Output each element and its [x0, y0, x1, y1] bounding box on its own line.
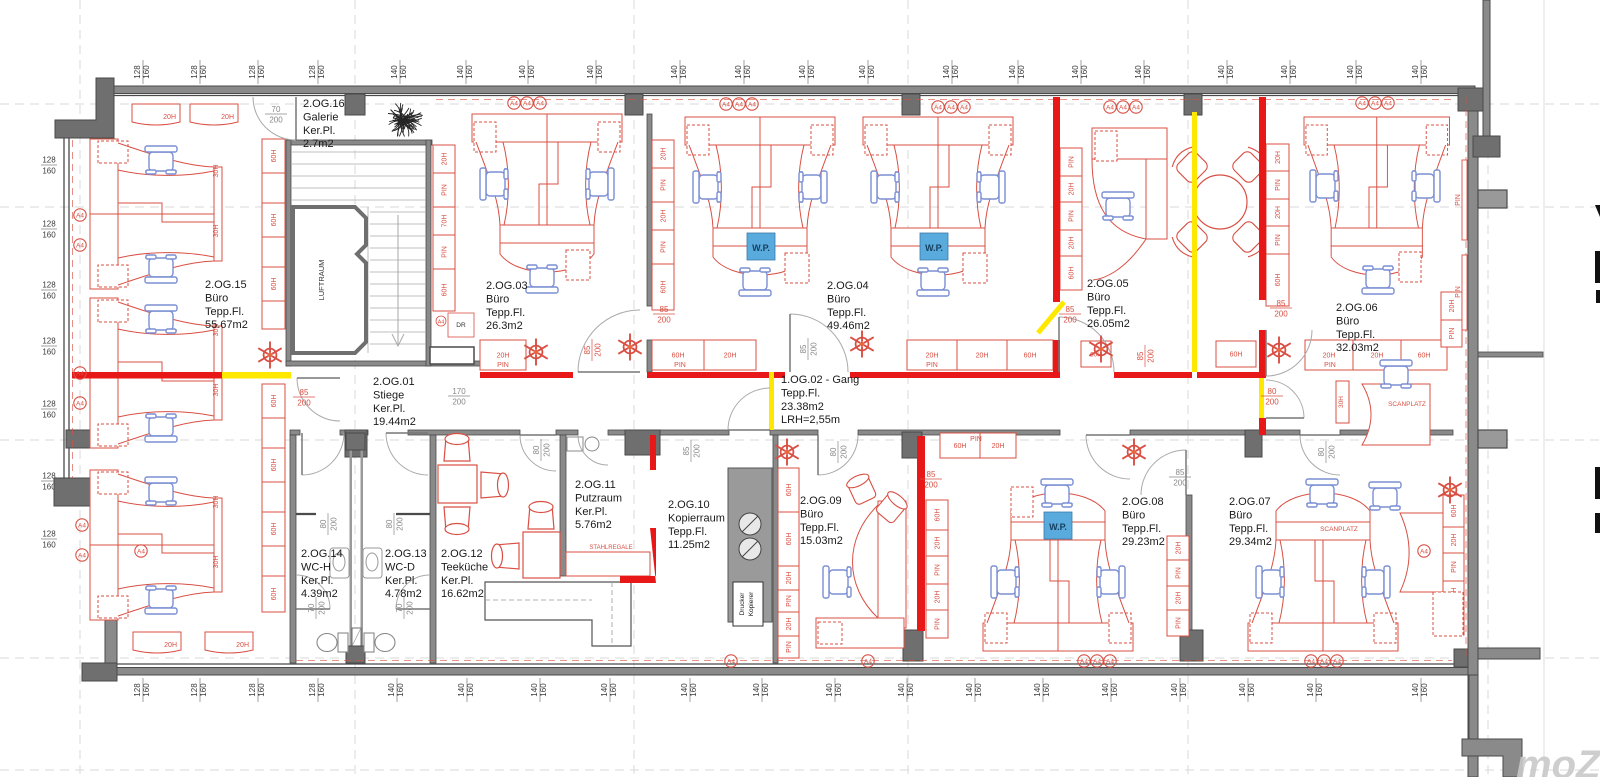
- svg-text:140: 140: [942, 65, 951, 79]
- svg-text:Büro: Büro: [486, 293, 509, 305]
- svg-text:140: 140: [586, 65, 595, 79]
- svg-text:23.38m2: 23.38m2: [781, 401, 824, 413]
- svg-text:70: 70: [395, 603, 404, 612]
- svg-text:160: 160: [1179, 683, 1188, 697]
- svg-text:160: 160: [974, 683, 983, 697]
- svg-text:2.OG.10: 2.OG.10: [668, 499, 710, 511]
- svg-text:200: 200: [406, 601, 415, 615]
- svg-text:Tepp.Fl.: Tepp.Fl.: [781, 387, 820, 399]
- svg-text:140: 140: [1346, 65, 1355, 79]
- svg-text:49.46m2: 49.46m2: [827, 320, 870, 332]
- svg-text:5.76m2: 5.76m2: [575, 519, 612, 531]
- svg-text:Büro: Büro: [827, 293, 850, 305]
- svg-text:4.39m2: 4.39m2: [301, 588, 338, 600]
- svg-text:60H: 60H: [786, 484, 793, 497]
- svg-text:PIN: PIN: [786, 595, 793, 607]
- svg-text:200: 200: [657, 316, 671, 325]
- svg-text:70H: 70H: [442, 215, 449, 228]
- svg-text:PIN: PIN: [1324, 362, 1336, 369]
- svg-text:140: 140: [680, 683, 689, 697]
- svg-text:30H: 30H: [213, 496, 220, 509]
- svg-text:160: 160: [1355, 65, 1364, 79]
- svg-text:PIN: PIN: [970, 436, 982, 443]
- svg-text:2.OG.04: 2.OG.04: [827, 280, 869, 292]
- svg-text:200: 200: [693, 444, 702, 458]
- svg-text:60H: 60H: [1451, 505, 1458, 518]
- svg-text:128: 128: [42, 220, 56, 229]
- svg-text:A4: A4: [1106, 105, 1114, 112]
- svg-text:A4: A4: [960, 105, 968, 112]
- svg-text:200: 200: [840, 445, 849, 459]
- svg-text:60H: 60H: [271, 150, 278, 163]
- svg-text:85: 85: [682, 446, 691, 455]
- svg-text:A4: A4: [1358, 101, 1366, 108]
- svg-text:160: 160: [465, 65, 474, 79]
- svg-text:128: 128: [42, 281, 56, 290]
- svg-text:A4: A4: [78, 553, 86, 560]
- svg-text:200: 200: [269, 116, 283, 125]
- svg-text:60H: 60H: [271, 523, 278, 536]
- svg-text:16.62m2: 16.62m2: [441, 588, 484, 600]
- svg-text:W.P.: W.P.: [752, 243, 770, 253]
- svg-text:PIN: PIN: [1449, 328, 1456, 340]
- svg-text:140: 140: [1170, 683, 1179, 697]
- svg-text:160: 160: [609, 683, 618, 697]
- svg-text:PIN: PIN: [661, 179, 668, 191]
- svg-text:2.OG.07: 2.OG.07: [1229, 496, 1271, 508]
- svg-text:80: 80: [1268, 387, 1277, 396]
- svg-text:30H: 30H: [213, 225, 220, 238]
- svg-text:200: 200: [396, 517, 405, 531]
- svg-text:128: 128: [133, 683, 142, 697]
- svg-text:60H: 60H: [271, 278, 278, 291]
- svg-text:Ker.Pl.: Ker.Pl.: [373, 403, 405, 415]
- svg-text:A4: A4: [76, 401, 84, 408]
- svg-text:20H: 20H: [1176, 542, 1183, 555]
- svg-text:160: 160: [399, 65, 408, 79]
- svg-text:Büro: Büro: [1229, 509, 1252, 521]
- svg-text:200: 200: [1328, 445, 1337, 459]
- svg-text:29.34m2: 29.34m2: [1229, 536, 1272, 548]
- svg-text:PIN: PIN: [1455, 194, 1462, 206]
- svg-text:A4: A4: [1093, 659, 1101, 666]
- svg-text:A4: A4: [76, 371, 84, 378]
- svg-text:A4: A4: [934, 105, 942, 112]
- svg-text:140: 140: [1280, 65, 1289, 79]
- svg-text:SCANPLATZ: SCANPLATZ: [1320, 526, 1358, 533]
- svg-text:1.OG.02 - Gang: 1.OG.02 - Gang: [781, 374, 859, 386]
- svg-text:60H: 60H: [935, 509, 942, 522]
- svg-text:20H: 20H: [164, 642, 177, 649]
- svg-text:A4: A4: [438, 320, 445, 326]
- svg-text:140: 140: [965, 683, 974, 697]
- svg-text:200: 200: [452, 398, 466, 407]
- svg-text:160: 160: [1315, 683, 1324, 697]
- svg-text:160: 160: [42, 541, 56, 550]
- svg-text:140: 140: [752, 683, 761, 697]
- svg-text:PIN: PIN: [1069, 156, 1076, 168]
- svg-text:160: 160: [42, 167, 56, 176]
- svg-text:Tepp.Fl.: Tepp.Fl.: [1336, 329, 1375, 341]
- svg-text:A4: A4: [137, 549, 145, 556]
- svg-text:A4: A4: [1119, 105, 1127, 112]
- svg-text:140: 140: [456, 65, 465, 79]
- svg-text:W.P.: W.P.: [925, 243, 943, 253]
- svg-text:140: 140: [1411, 65, 1420, 79]
- svg-text:160: 160: [317, 683, 326, 697]
- svg-text:200: 200: [1265, 398, 1279, 407]
- svg-text:A4: A4: [1420, 549, 1428, 556]
- svg-text:20H: 20H: [935, 591, 942, 604]
- svg-text:A4: A4: [76, 243, 84, 250]
- svg-text:160: 160: [867, 65, 876, 79]
- svg-text:160: 160: [257, 65, 266, 79]
- svg-text:85: 85: [300, 388, 309, 397]
- svg-text:160: 160: [1017, 65, 1026, 79]
- svg-text:20H: 20H: [1323, 353, 1336, 360]
- svg-text:160: 160: [679, 65, 688, 79]
- svg-text:20H: 20H: [1069, 237, 1076, 250]
- svg-text:160: 160: [1247, 683, 1256, 697]
- svg-text:2.7m2: 2.7m2: [303, 138, 334, 150]
- svg-text:PIN: PIN: [674, 362, 686, 369]
- svg-text:160: 160: [396, 683, 405, 697]
- svg-text:LUFTRAUM: LUFTRAUM: [317, 260, 326, 301]
- svg-text:Büro: Büro: [1122, 509, 1145, 521]
- svg-text:WC-D: WC-D: [385, 561, 415, 573]
- svg-text:A4: A4: [735, 102, 743, 109]
- svg-text:Ker.Pl.: Ker.Pl.: [575, 506, 607, 518]
- svg-text:85: 85: [660, 305, 669, 314]
- svg-text:140: 140: [457, 683, 466, 697]
- svg-text:80: 80: [532, 445, 541, 454]
- svg-text:30H: 30H: [1338, 396, 1345, 408]
- svg-text:Tepp.Fl.: Tepp.Fl.: [1122, 523, 1161, 535]
- svg-text:160: 160: [539, 683, 548, 697]
- svg-text:2.OG.06: 2.OG.06: [1336, 302, 1378, 314]
- svg-text:A4: A4: [1384, 101, 1392, 108]
- svg-text:160: 160: [1420, 65, 1429, 79]
- svg-text:160: 160: [807, 65, 816, 79]
- svg-text:Büro: Büro: [800, 508, 823, 520]
- svg-text:128: 128: [308, 683, 317, 697]
- svg-text:W.P.: W.P.: [1049, 522, 1067, 532]
- svg-text:128: 128: [42, 530, 56, 539]
- svg-text:20H: 20H: [1275, 206, 1282, 219]
- svg-text:160: 160: [1110, 683, 1119, 697]
- svg-text:160: 160: [42, 231, 56, 240]
- svg-text:60H: 60H: [1069, 267, 1076, 280]
- svg-text:2.OG.15: 2.OG.15: [205, 279, 247, 291]
- svg-text:SCANPLATZ: SCANPLATZ: [1388, 401, 1426, 408]
- svg-text:160: 160: [42, 348, 56, 357]
- svg-text:60H: 60H: [442, 284, 449, 297]
- svg-text:160: 160: [761, 683, 770, 697]
- svg-text:20H: 20H: [442, 153, 449, 166]
- svg-text:160: 160: [689, 683, 698, 697]
- svg-text:A4: A4: [523, 101, 531, 108]
- svg-text:2.OG.14: 2.OG.14: [301, 548, 343, 560]
- svg-text:140: 140: [825, 683, 834, 697]
- svg-text:140: 140: [670, 65, 679, 79]
- svg-text:26.05m2: 26.05m2: [1087, 318, 1130, 330]
- svg-text:160: 160: [595, 65, 604, 79]
- svg-text:Büro: Büro: [1087, 291, 1110, 303]
- svg-text:140: 140: [1101, 683, 1110, 697]
- svg-text:A4: A4: [510, 101, 518, 108]
- svg-text:PIN: PIN: [1455, 286, 1462, 298]
- svg-text:200: 200: [1274, 310, 1288, 319]
- svg-text:85: 85: [799, 344, 808, 353]
- svg-text:A4: A4: [722, 102, 730, 109]
- svg-text:15.03m2: 15.03m2: [800, 535, 843, 547]
- svg-text:20H: 20H: [221, 114, 234, 121]
- svg-text:160: 160: [1226, 65, 1235, 79]
- svg-text:DR: DR: [456, 322, 466, 329]
- svg-text:A4: A4: [947, 105, 955, 112]
- svg-text:140: 140: [1217, 65, 1226, 79]
- svg-text:Ker.Pl.: Ker.Pl.: [303, 125, 335, 137]
- svg-text:60H: 60H: [1024, 353, 1037, 360]
- svg-text:160: 160: [42, 292, 56, 301]
- svg-text:85: 85: [1176, 468, 1185, 477]
- svg-text:Galerie: Galerie: [303, 111, 338, 123]
- svg-text:55.67m2: 55.67m2: [205, 319, 248, 331]
- svg-text:32.03m2: 32.03m2: [1336, 342, 1379, 354]
- svg-text:140: 140: [600, 683, 609, 697]
- svg-text:128: 128: [42, 400, 56, 409]
- svg-text:A4: A4: [748, 102, 756, 109]
- svg-text:29.23m2: 29.23m2: [1122, 536, 1165, 548]
- svg-text:85: 85: [1136, 351, 1145, 360]
- svg-text:A4: A4: [1320, 659, 1328, 666]
- svg-text:80: 80: [319, 519, 328, 528]
- svg-text:A4: A4: [78, 523, 86, 530]
- svg-text:20H: 20H: [724, 353, 737, 360]
- svg-text:60H: 60H: [786, 533, 793, 546]
- svg-text:PIN: PIN: [786, 641, 793, 653]
- svg-text:200: 200: [543, 443, 552, 457]
- svg-text:60H: 60H: [271, 459, 278, 472]
- svg-text:STAHLREGALE: STAHLREGALE: [589, 545, 632, 551]
- svg-text:Ker.Pl.: Ker.Pl.: [441, 575, 473, 587]
- svg-text:2.OG.08: 2.OG.08: [1122, 496, 1164, 508]
- svg-text:20H: 20H: [926, 353, 939, 360]
- svg-text:PIN: PIN: [442, 246, 449, 258]
- svg-text:LRH=2,55m: LRH=2,55m: [781, 414, 840, 426]
- svg-text:19.44m2: 19.44m2: [373, 416, 416, 428]
- svg-text:PIN: PIN: [1176, 617, 1183, 629]
- svg-text:Büro: Büro: [205, 292, 228, 304]
- svg-text:moZ: moZ: [1516, 743, 1600, 777]
- svg-text:60H: 60H: [672, 353, 685, 360]
- svg-text:200: 200: [810, 342, 819, 356]
- svg-text:128: 128: [133, 65, 142, 79]
- svg-text:A4: A4: [1371, 101, 1379, 108]
- svg-text:Tepp.Fl.: Tepp.Fl.: [1087, 305, 1126, 317]
- svg-text:200: 200: [318, 601, 327, 615]
- svg-text:160: 160: [257, 683, 266, 697]
- svg-text:128: 128: [42, 156, 56, 165]
- svg-text:140: 140: [518, 65, 527, 79]
- svg-text:160: 160: [142, 683, 151, 697]
- svg-text:20H: 20H: [163, 114, 176, 121]
- svg-text:Tepp.Fl.: Tepp.Fl.: [668, 526, 707, 538]
- svg-text:26.3m2: 26.3m2: [486, 320, 523, 332]
- svg-text:140: 140: [530, 683, 539, 697]
- svg-text:Tepp.Fl.: Tepp.Fl.: [486, 307, 525, 319]
- svg-text:A4: A4: [1080, 659, 1088, 666]
- svg-text:60H: 60H: [271, 395, 278, 408]
- svg-text:PIN: PIN: [1069, 210, 1076, 222]
- svg-text:PIN: PIN: [1275, 234, 1282, 246]
- svg-text:A4: A4: [864, 659, 872, 666]
- svg-text:PIN: PIN: [1451, 561, 1458, 573]
- svg-text:20H: 20H: [1451, 534, 1458, 547]
- svg-text:20H: 20H: [786, 618, 793, 631]
- svg-text:85: 85: [1066, 305, 1075, 314]
- svg-text:200: 200: [1147, 349, 1156, 363]
- svg-text:20H: 20H: [236, 642, 249, 649]
- svg-text:200: 200: [1063, 316, 1077, 325]
- svg-text:PIN: PIN: [935, 564, 942, 576]
- svg-text:20H: 20H: [497, 353, 510, 360]
- svg-text:160: 160: [199, 65, 208, 79]
- svg-text:140: 140: [1306, 683, 1315, 697]
- svg-text:160: 160: [834, 683, 843, 697]
- svg-text:140: 140: [1411, 683, 1420, 697]
- svg-text:20H: 20H: [786, 572, 793, 585]
- svg-text:20H: 20H: [976, 353, 989, 360]
- svg-text:140: 140: [858, 65, 867, 79]
- svg-text:60H: 60H: [1230, 352, 1243, 359]
- svg-text:60H: 60H: [1418, 353, 1431, 360]
- svg-text:20H: 20H: [1275, 151, 1282, 164]
- svg-text:140: 140: [390, 65, 399, 79]
- svg-text:PIN: PIN: [661, 241, 668, 253]
- svg-text:200: 200: [1173, 479, 1187, 488]
- svg-text:85: 85: [583, 345, 592, 354]
- svg-text:20H: 20H: [661, 148, 668, 161]
- svg-text:85: 85: [927, 470, 936, 479]
- svg-text:2.OG.11: 2.OG.11: [575, 479, 616, 491]
- svg-text:140: 140: [1134, 65, 1143, 79]
- svg-text:PIN: PIN: [1176, 567, 1183, 579]
- svg-text:A4: A4: [1307, 659, 1315, 666]
- svg-text:160: 160: [951, 65, 960, 79]
- svg-text:11.25m2: 11.25m2: [668, 539, 710, 551]
- svg-text:140: 140: [734, 65, 743, 79]
- svg-text:2.OG.16: 2.OG.16: [303, 98, 345, 110]
- svg-text:160: 160: [142, 65, 151, 79]
- svg-text:70: 70: [307, 603, 316, 612]
- svg-text:Teeküche: Teeküche: [441, 561, 488, 573]
- svg-text:140: 140: [1033, 683, 1042, 697]
- svg-text:30H: 30H: [213, 556, 220, 569]
- svg-text:20H: 20H: [661, 210, 668, 223]
- svg-text:A4: A4: [536, 101, 544, 108]
- svg-text:2.OG.03: 2.OG.03: [486, 280, 528, 292]
- svg-text:200: 200: [594, 343, 603, 357]
- svg-text:A4: A4: [1132, 105, 1140, 112]
- svg-text:60H: 60H: [954, 443, 967, 450]
- svg-text:60H: 60H: [271, 214, 278, 227]
- svg-text:PIN: PIN: [497, 362, 509, 369]
- svg-text:160: 160: [317, 65, 326, 79]
- svg-text:140: 140: [1008, 65, 1017, 79]
- svg-text:128: 128: [190, 65, 199, 79]
- svg-text:A4: A4: [1106, 659, 1114, 666]
- svg-text:Kopierraum: Kopierraum: [668, 512, 725, 524]
- svg-text:2.OG.09: 2.OG.09: [800, 495, 842, 507]
- svg-text:128: 128: [42, 337, 56, 346]
- svg-text:Tepp.Fl.: Tepp.Fl.: [205, 306, 244, 318]
- svg-text:PIN: PIN: [1275, 179, 1282, 191]
- svg-text:80: 80: [385, 519, 394, 528]
- svg-text:60H: 60H: [271, 588, 278, 601]
- svg-text:20H: 20H: [935, 537, 942, 550]
- svg-text:160: 160: [199, 683, 208, 697]
- svg-text:160: 160: [1143, 65, 1152, 79]
- svg-text:80: 80: [1317, 447, 1326, 456]
- svg-text:PIN: PIN: [442, 184, 449, 196]
- svg-text:2.OG.12: 2.OG.12: [441, 548, 483, 560]
- svg-text:128: 128: [248, 65, 257, 79]
- svg-text:160: 160: [527, 65, 536, 79]
- svg-text:A4: A4: [76, 213, 84, 220]
- svg-text:128: 128: [248, 683, 257, 697]
- svg-text:160: 160: [1042, 683, 1051, 697]
- svg-text:Ker.Pl.: Ker.Pl.: [385, 575, 417, 587]
- svg-text:Tepp.Fl.: Tepp.Fl.: [1229, 523, 1268, 535]
- svg-text:60H: 60H: [661, 281, 668, 294]
- svg-text:140: 140: [897, 683, 906, 697]
- svg-text:20H: 20H: [1449, 300, 1456, 313]
- svg-text:A4: A4: [1333, 659, 1341, 666]
- svg-text:160: 160: [1080, 65, 1089, 79]
- svg-text:128: 128: [190, 683, 199, 697]
- svg-text:140: 140: [1238, 683, 1247, 697]
- svg-text:160: 160: [743, 65, 752, 79]
- svg-text:4.78m2: 4.78m2: [385, 588, 422, 600]
- svg-text:2.OG.13: 2.OG.13: [385, 548, 427, 560]
- svg-text:60H: 60H: [1275, 274, 1282, 287]
- svg-text:85: 85: [1277, 299, 1286, 308]
- svg-text:WC-H: WC-H: [301, 561, 331, 573]
- svg-text:160: 160: [466, 683, 475, 697]
- svg-text:160: 160: [906, 683, 915, 697]
- svg-text:Kopierer: Kopierer: [748, 591, 755, 616]
- svg-text:80: 80: [829, 447, 838, 456]
- svg-text:2.OG.01: 2.OG.01: [373, 376, 415, 388]
- svg-text:Ker.Pl.: Ker.Pl.: [301, 575, 333, 587]
- svg-text:Tepp.Fl.: Tepp.Fl.: [800, 522, 839, 534]
- svg-text:Büro: Büro: [1336, 315, 1359, 327]
- svg-text:A4: A4: [727, 659, 735, 666]
- svg-text:200: 200: [924, 481, 938, 490]
- svg-text:160: 160: [1420, 683, 1429, 697]
- svg-text:20H: 20H: [1069, 183, 1076, 196]
- svg-text:200: 200: [330, 517, 339, 531]
- svg-text:140: 140: [798, 65, 807, 79]
- svg-text:70: 70: [272, 105, 281, 114]
- svg-text:Drucker: Drucker: [739, 592, 746, 616]
- svg-text:Tepp.Fl.: Tepp.Fl.: [827, 307, 866, 319]
- svg-text:PIN: PIN: [935, 618, 942, 630]
- svg-text:140: 140: [387, 683, 396, 697]
- svg-text:30H: 30H: [213, 384, 220, 397]
- svg-text:200: 200: [297, 399, 311, 408]
